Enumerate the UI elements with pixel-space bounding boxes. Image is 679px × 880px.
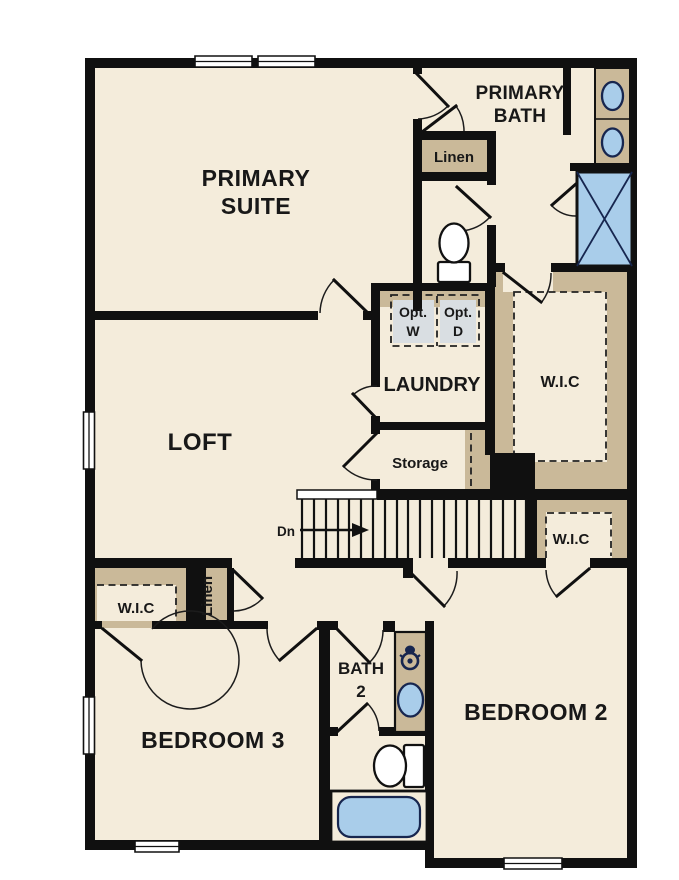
label-opt-washer-line2: W <box>406 323 420 339</box>
room-label-laundry: LAUNDRY <box>383 374 481 396</box>
room-label-primary-suite-line2: SUITE <box>221 193 291 219</box>
label-opt-dryer-line1: Opt. <box>444 304 472 320</box>
label-opt-dryer-line2: D <box>453 323 463 339</box>
room-label-wic-primary: W.I.C <box>540 374 580 391</box>
sink-icon <box>602 82 623 110</box>
label-opt-washer-line1: Opt. <box>399 304 427 320</box>
room-label-primary-bath-line2: BATH <box>494 106 547 127</box>
room-label-bedroom2: BEDROOM 2 <box>464 699 608 725</box>
room-label-bath2-line1: BATH <box>338 659 384 678</box>
toilet-tank <box>438 262 470 282</box>
floor-plan-canvas: Dn PRIMARY SUITE PRIMARY BATH Linen <box>0 0 679 880</box>
sink-icon <box>602 129 623 157</box>
room-label-loft: LOFT <box>168 429 233 456</box>
bathtub-icon <box>338 797 420 837</box>
room-label-primary-bath-line1: PRIMARY <box>475 83 564 104</box>
sink-icon <box>398 684 423 717</box>
room-label-primary-suite-line1: PRIMARY <box>202 165 311 191</box>
floor-plan-page: Dn PRIMARY SUITE PRIMARY BATH Linen <box>0 0 679 880</box>
room-label-hall-linen: Linen <box>199 576 216 616</box>
room-label-bath-linen: Linen <box>434 149 474 166</box>
stair-rail <box>297 490 377 499</box>
room-label-storage: Storage <box>392 455 448 472</box>
toilet-icon <box>440 224 469 263</box>
stair-direction-label: Dn <box>277 524 295 539</box>
room-label-bedroom3: BEDROOM 3 <box>141 727 285 753</box>
toilet-icon <box>374 746 406 787</box>
room-label-wic-bedroom3: W.I.C <box>118 600 155 617</box>
room-label-wic-bedroom2: W.I.C <box>553 531 590 548</box>
room-label-bath2-line2: 2 <box>356 682 365 701</box>
